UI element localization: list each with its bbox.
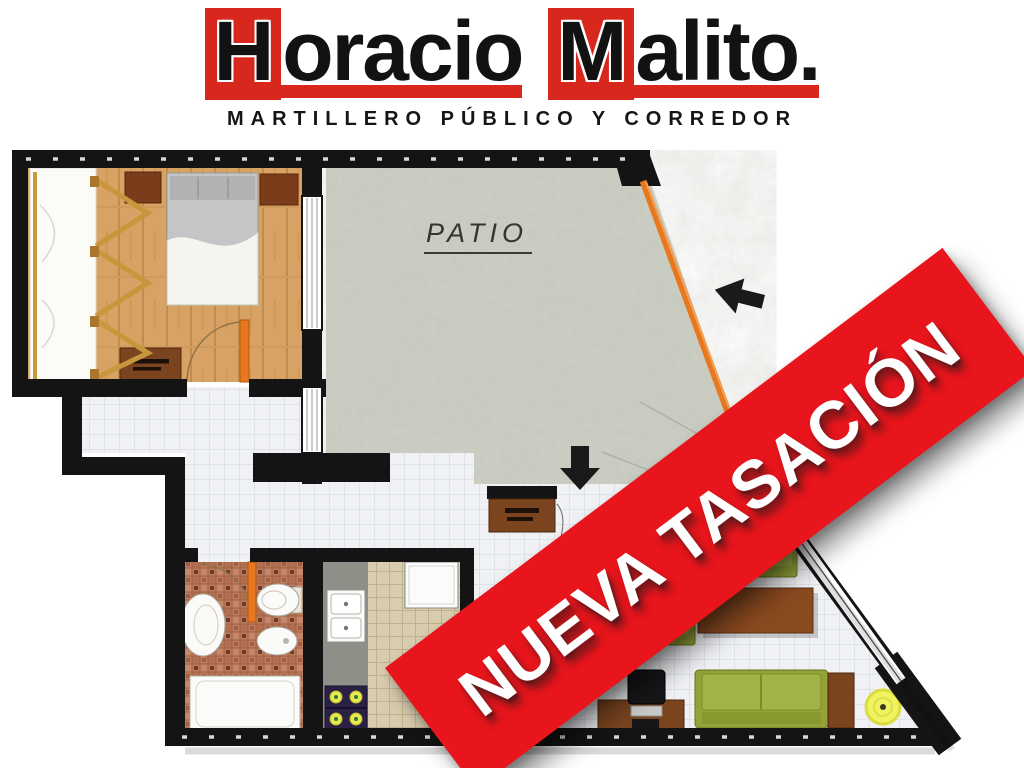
double-bed xyxy=(167,173,258,305)
fridge xyxy=(405,562,458,608)
bidet xyxy=(257,627,297,655)
toilet xyxy=(257,584,302,616)
bedroom-patio-wall-upper xyxy=(302,150,322,196)
bedroom-bottom-wall xyxy=(12,379,187,397)
patio-bottom-wall xyxy=(253,453,390,482)
patio-label: PATIO xyxy=(424,218,532,254)
brand-subtitle: MARTILLERO PÚBLICO Y CORREDOR xyxy=(0,108,1024,131)
brand-word-malito: Malito. xyxy=(548,8,819,104)
brand-rest-alito: alito xyxy=(635,4,798,98)
bathtub xyxy=(190,676,300,732)
hall-patio-window xyxy=(302,387,322,453)
nightstand-left xyxy=(125,172,161,203)
sofa xyxy=(695,670,828,728)
lower-left-wall xyxy=(165,457,185,746)
bedroom-patio-window xyxy=(302,196,322,330)
bedroom-patio-wall-lower xyxy=(302,330,322,387)
sofa-side-table xyxy=(828,673,854,728)
bathroom-door-leaf xyxy=(248,562,256,622)
bath-kitchen-top-wall xyxy=(250,548,474,562)
left-wall xyxy=(12,150,28,397)
bathroom-top-wall-stub xyxy=(185,548,198,562)
real-estate-flyer: Horacio Malito. MARTILLERO PÚBLICO Y COR… xyxy=(0,0,1024,768)
brand-word-horacio: Horacio xyxy=(205,8,523,104)
brand-initial-m: M xyxy=(548,8,634,100)
brand-period: . xyxy=(798,4,819,98)
kitchen-sink xyxy=(327,590,365,642)
brand-initial-h: H xyxy=(205,8,282,100)
stove xyxy=(325,686,367,730)
entrance-arrow-icon xyxy=(710,272,767,319)
brand-wordmark: Horacio Malito. xyxy=(205,8,820,104)
closet-interior xyxy=(30,168,96,380)
bath-kitchen-divider xyxy=(303,548,323,746)
nightstand-right xyxy=(260,174,298,205)
bedroom-door-leaf xyxy=(240,320,249,382)
brand-header: Horacio Malito. MARTILLERO PÚBLICO Y COR… xyxy=(0,8,1024,131)
brand-rest-oracio: oracio xyxy=(282,4,522,98)
